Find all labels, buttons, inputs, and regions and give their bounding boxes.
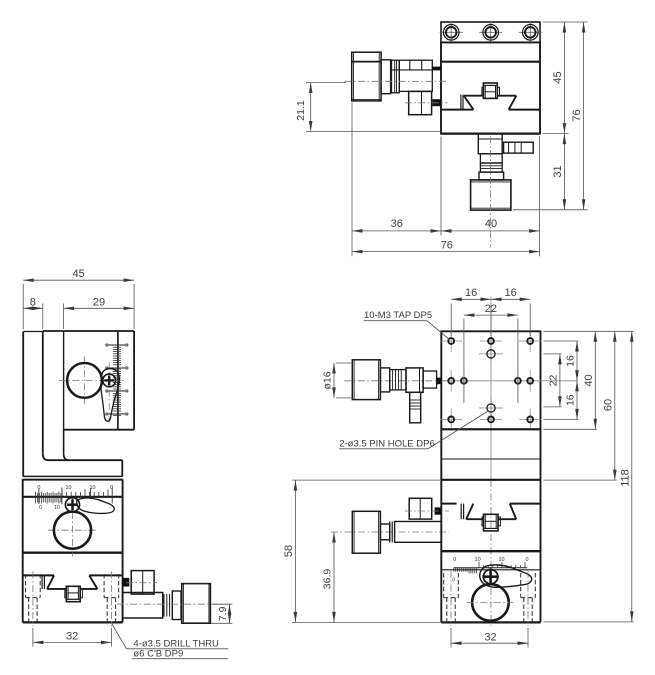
svg-text:10: 10 <box>54 505 60 511</box>
svg-text:10: 10 <box>498 557 504 563</box>
svg-text:22: 22 <box>485 303 497 315</box>
svg-text:ø16: ø16 <box>322 371 334 389</box>
svg-text:21.1: 21.1 <box>295 100 307 121</box>
svg-text:22: 22 <box>547 375 559 387</box>
svg-text:0: 0 <box>452 577 455 583</box>
svg-text:45: 45 <box>72 268 84 280</box>
svg-text:32: 32 <box>66 631 78 643</box>
svg-text:8: 8 <box>30 296 36 308</box>
svg-text:60: 60 <box>602 399 614 411</box>
svg-text:16: 16 <box>565 355 577 367</box>
svg-text:2-ø3.5 PIN HOLE DP6: 2-ø3.5 PIN HOLE DP6 <box>339 438 435 449</box>
svg-text:58: 58 <box>283 545 295 557</box>
svg-text:45: 45 <box>552 71 564 83</box>
svg-text:36: 36 <box>391 218 403 230</box>
svg-text:16: 16 <box>465 287 477 299</box>
svg-text:10-M3 TAP DP5: 10-M3 TAP DP5 <box>364 310 432 321</box>
svg-text:ø6 C'B DP9: ø6 C'B DP9 <box>133 649 183 660</box>
svg-text:16: 16 <box>565 394 577 406</box>
svg-text:10: 10 <box>475 557 481 563</box>
svg-text:118: 118 <box>619 469 631 487</box>
svg-text:7.9: 7.9 <box>217 606 229 621</box>
svg-text:10: 10 <box>65 485 71 491</box>
svg-text:0: 0 <box>453 557 456 563</box>
svg-text:29: 29 <box>93 296 105 308</box>
svg-text:40: 40 <box>583 374 595 386</box>
svg-text:76: 76 <box>571 109 583 121</box>
svg-text:76: 76 <box>441 239 453 251</box>
svg-text:16: 16 <box>504 287 516 299</box>
svg-text:0: 0 <box>525 557 528 563</box>
svg-text:36.9: 36.9 <box>322 569 334 590</box>
svg-text:32: 32 <box>484 631 496 643</box>
svg-text:40: 40 <box>485 218 497 230</box>
svg-text:31: 31 <box>552 165 564 177</box>
svg-text:0: 0 <box>39 505 42 511</box>
